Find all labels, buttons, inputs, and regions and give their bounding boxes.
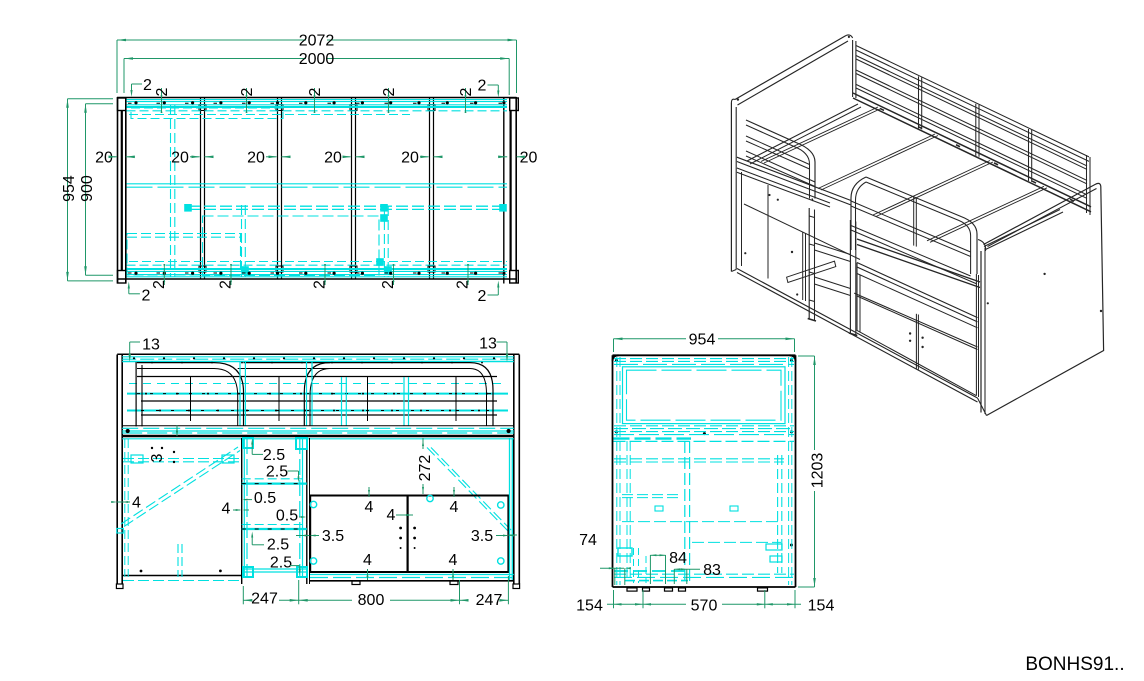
svg-text:0.5: 0.5: [254, 490, 276, 507]
svg-text:20: 20: [247, 149, 265, 166]
svg-text:570: 570: [691, 598, 718, 615]
svg-text:74: 74: [579, 532, 597, 549]
svg-text:4: 4: [222, 501, 231, 518]
svg-text:2.5: 2.5: [263, 447, 285, 464]
svg-text:2: 2: [458, 87, 475, 96]
svg-text:954: 954: [61, 175, 78, 202]
svg-text:800: 800: [358, 592, 385, 609]
svg-text:20: 20: [520, 149, 538, 166]
svg-text:2: 2: [151, 280, 168, 289]
svg-text:4: 4: [365, 499, 374, 516]
svg-text:247: 247: [251, 591, 278, 608]
svg-text:84: 84: [669, 550, 687, 567]
svg-text:4: 4: [132, 495, 141, 512]
svg-text:20: 20: [324, 149, 342, 166]
svg-text:247: 247: [476, 592, 503, 609]
svg-text:2: 2: [307, 87, 324, 96]
svg-text:13: 13: [479, 336, 497, 353]
svg-text:2000: 2000: [299, 51, 335, 68]
svg-text:2072: 2072: [299, 33, 335, 50]
svg-text:3: 3: [149, 453, 166, 462]
svg-text:2: 2: [143, 77, 152, 94]
svg-text:2.5: 2.5: [267, 537, 289, 554]
svg-text:2: 2: [478, 288, 487, 305]
svg-text:2: 2: [239, 87, 256, 96]
svg-text:272: 272: [417, 455, 434, 482]
svg-text:2: 2: [381, 87, 398, 96]
svg-text:2.5: 2.5: [266, 464, 288, 481]
svg-text:2: 2: [142, 288, 151, 305]
svg-text:2: 2: [380, 280, 397, 289]
svg-text:154: 154: [576, 598, 603, 615]
svg-text:954: 954: [689, 332, 716, 349]
svg-text:2: 2: [312, 280, 329, 289]
svg-text:2: 2: [455, 280, 472, 289]
svg-text:13: 13: [142, 337, 160, 354]
svg-text:BONHS91..: BONHS91..: [1025, 654, 1124, 675]
svg-text:900: 900: [79, 175, 96, 202]
svg-text:20: 20: [401, 149, 419, 166]
svg-text:2.5: 2.5: [270, 555, 292, 572]
svg-text:83: 83: [703, 562, 721, 579]
svg-text:0.5: 0.5: [276, 508, 298, 525]
svg-text:4: 4: [363, 552, 372, 569]
svg-text:2: 2: [218, 280, 235, 289]
svg-text:3.5: 3.5: [322, 528, 344, 545]
svg-text:2: 2: [154, 87, 171, 96]
svg-text:20: 20: [171, 149, 189, 166]
svg-text:3.5: 3.5: [471, 528, 493, 545]
svg-text:4: 4: [449, 552, 458, 569]
svg-text:1203: 1203: [810, 453, 827, 489]
svg-text:2: 2: [478, 78, 487, 95]
svg-text:4: 4: [450, 499, 459, 516]
svg-text:154: 154: [808, 598, 835, 615]
svg-text:4: 4: [387, 507, 396, 524]
